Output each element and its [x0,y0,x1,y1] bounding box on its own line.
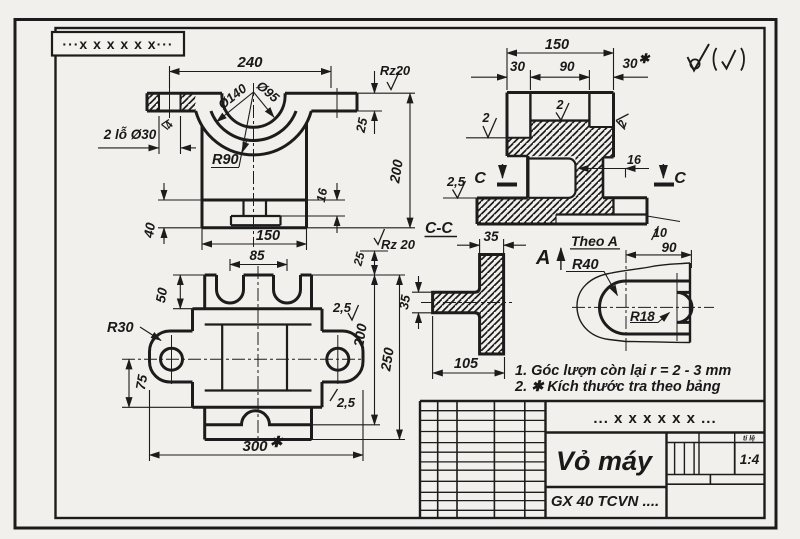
svg-text:10: 10 [653,226,667,240]
svg-text:300: 300 [242,438,268,455]
svg-text:2,5: 2,5 [336,395,356,410]
svg-text:2: 2 [556,98,564,112]
svg-text:2,5: 2,5 [446,174,466,189]
svg-text:tỉ lệ: tỉ lệ [743,436,755,443]
svg-text:Rz 20: Rz 20 [381,237,416,252]
svg-text:R18: R18 [630,309,655,324]
svg-text:Ø95: Ø95 [254,78,283,106]
svg-text:200: 200 [350,322,370,349]
svg-text:Ø140: Ø140 [215,80,250,112]
svg-text:Vỏ máy: Vỏ máy [556,446,654,476]
svg-text:C: C [674,170,686,187]
svg-text:A: A [535,247,550,269]
svg-text:2: 2 [482,111,490,125]
svg-text:✱: ✱ [639,51,651,66]
svg-text:200: 200 [386,158,406,185]
svg-text:2 lỗ Ø30: 2 lỗ Ø30 [103,127,157,142]
svg-text:2. ✱ Kích thước tra theo bảng: 2. ✱ Kích thước tra theo bảng [514,379,721,395]
svg-text:25: 25 [350,250,367,268]
svg-text:150: 150 [545,37,569,53]
svg-text:1:4: 1:4 [740,452,760,467]
svg-text:... x x x x x x ...: ... x x x x x x ... [593,410,716,427]
svg-text:30: 30 [622,56,638,71]
svg-text:C-C: C-C [425,220,453,237]
svg-text:Rz20: Rz20 [380,63,411,78]
svg-text:240: 240 [236,54,263,71]
svg-text:85: 85 [249,248,265,263]
svg-text:✱: ✱ [270,434,284,451]
svg-text:R90: R90 [212,152,239,168]
svg-text:90: 90 [559,59,575,74]
svg-text:35: 35 [396,293,413,311]
svg-text:150: 150 [256,228,280,244]
svg-text:50: 50 [153,286,170,304]
svg-text:GX 40 TCVN ....: GX 40 TCVN .... [551,493,659,510]
svg-text:R40: R40 [572,257,599,273]
svg-text:···x x x x x x···: ···x x x x x x··· [62,36,173,52]
svg-text:75: 75 [133,373,150,391]
svg-text:35: 35 [483,229,499,244]
svg-text:C: C [474,170,486,187]
svg-text:16: 16 [627,153,642,167]
svg-text:Theo A: Theo A [571,233,618,249]
svg-text:R30: R30 [107,320,134,336]
svg-text:16: 16 [314,186,330,203]
svg-text:90: 90 [661,240,677,255]
svg-text:40: 40 [141,221,159,240]
svg-text:105: 105 [454,356,479,372]
svg-text:1. Góc lượn còn lại r = 2 - 3: 1. Góc lượn còn lại r = 2 - 3 mm [515,363,731,379]
svg-text:2: 2 [616,118,630,130]
svg-text:250: 250 [377,346,397,373]
svg-text:30: 30 [510,59,526,74]
svg-text:4: 4 [162,120,176,132]
svg-text:2,5: 2,5 [332,300,352,315]
svg-text:25: 25 [353,116,371,135]
